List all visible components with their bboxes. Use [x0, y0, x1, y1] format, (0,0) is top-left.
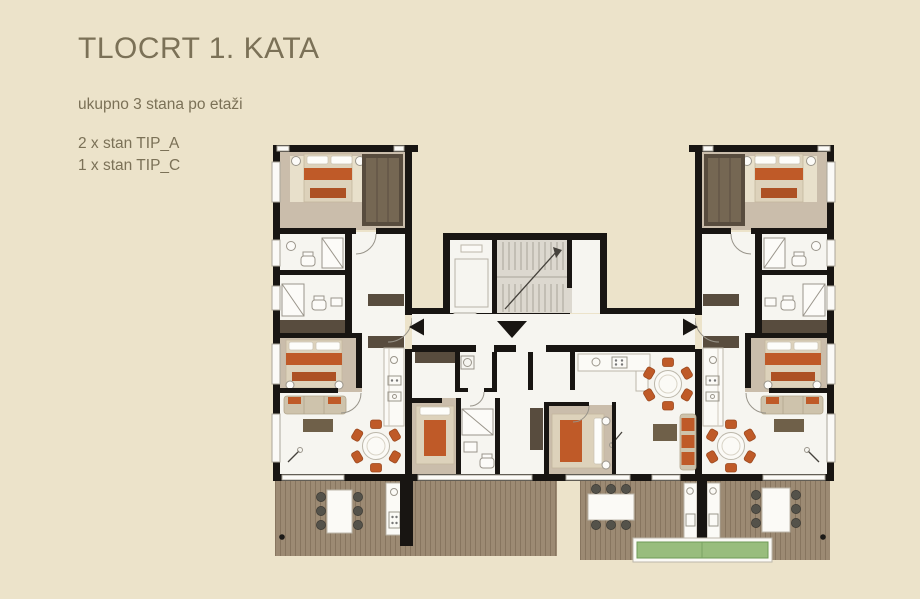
glass-door	[418, 475, 532, 480]
wardrobe	[530, 408, 543, 450]
outdoor-dining-table	[588, 484, 634, 529]
window	[272, 344, 280, 384]
glass-door	[282, 475, 344, 480]
sofa	[284, 396, 346, 414]
wardrobe	[415, 352, 455, 363]
wardrobe	[362, 154, 403, 226]
glass-door	[566, 475, 630, 480]
apartment-tip-c	[412, 345, 696, 481]
bed	[416, 406, 454, 464]
glass-door	[652, 475, 680, 480]
window	[272, 240, 280, 266]
apartment-tip-a-right	[689, 145, 835, 481]
outdoor-dining-table	[751, 488, 800, 532]
outdoor-dining-table	[316, 490, 362, 533]
window	[394, 146, 404, 151]
bed	[286, 340, 343, 389]
wardrobe	[280, 320, 345, 333]
apartment-tip-a-left	[272, 145, 418, 481]
window	[277, 146, 289, 151]
sofa	[680, 414, 696, 470]
wardrobe	[368, 294, 404, 306]
floor-plan-svg	[0, 0, 920, 599]
window	[272, 162, 280, 202]
deck-drain-dot	[279, 534, 285, 540]
outdoor-kitchen	[386, 483, 402, 535]
kitchen-counter	[384, 348, 404, 426]
rug	[303, 419, 333, 432]
window	[272, 414, 280, 462]
green-planter	[633, 538, 772, 562]
bed	[552, 414, 610, 469]
window	[272, 286, 280, 310]
deck-drain-dot	[820, 534, 826, 540]
wardrobe	[368, 336, 404, 348]
page: TLOCRT 1. KATA ukupno 3 stana po etaži 2…	[0, 0, 920, 599]
rug	[653, 424, 677, 441]
